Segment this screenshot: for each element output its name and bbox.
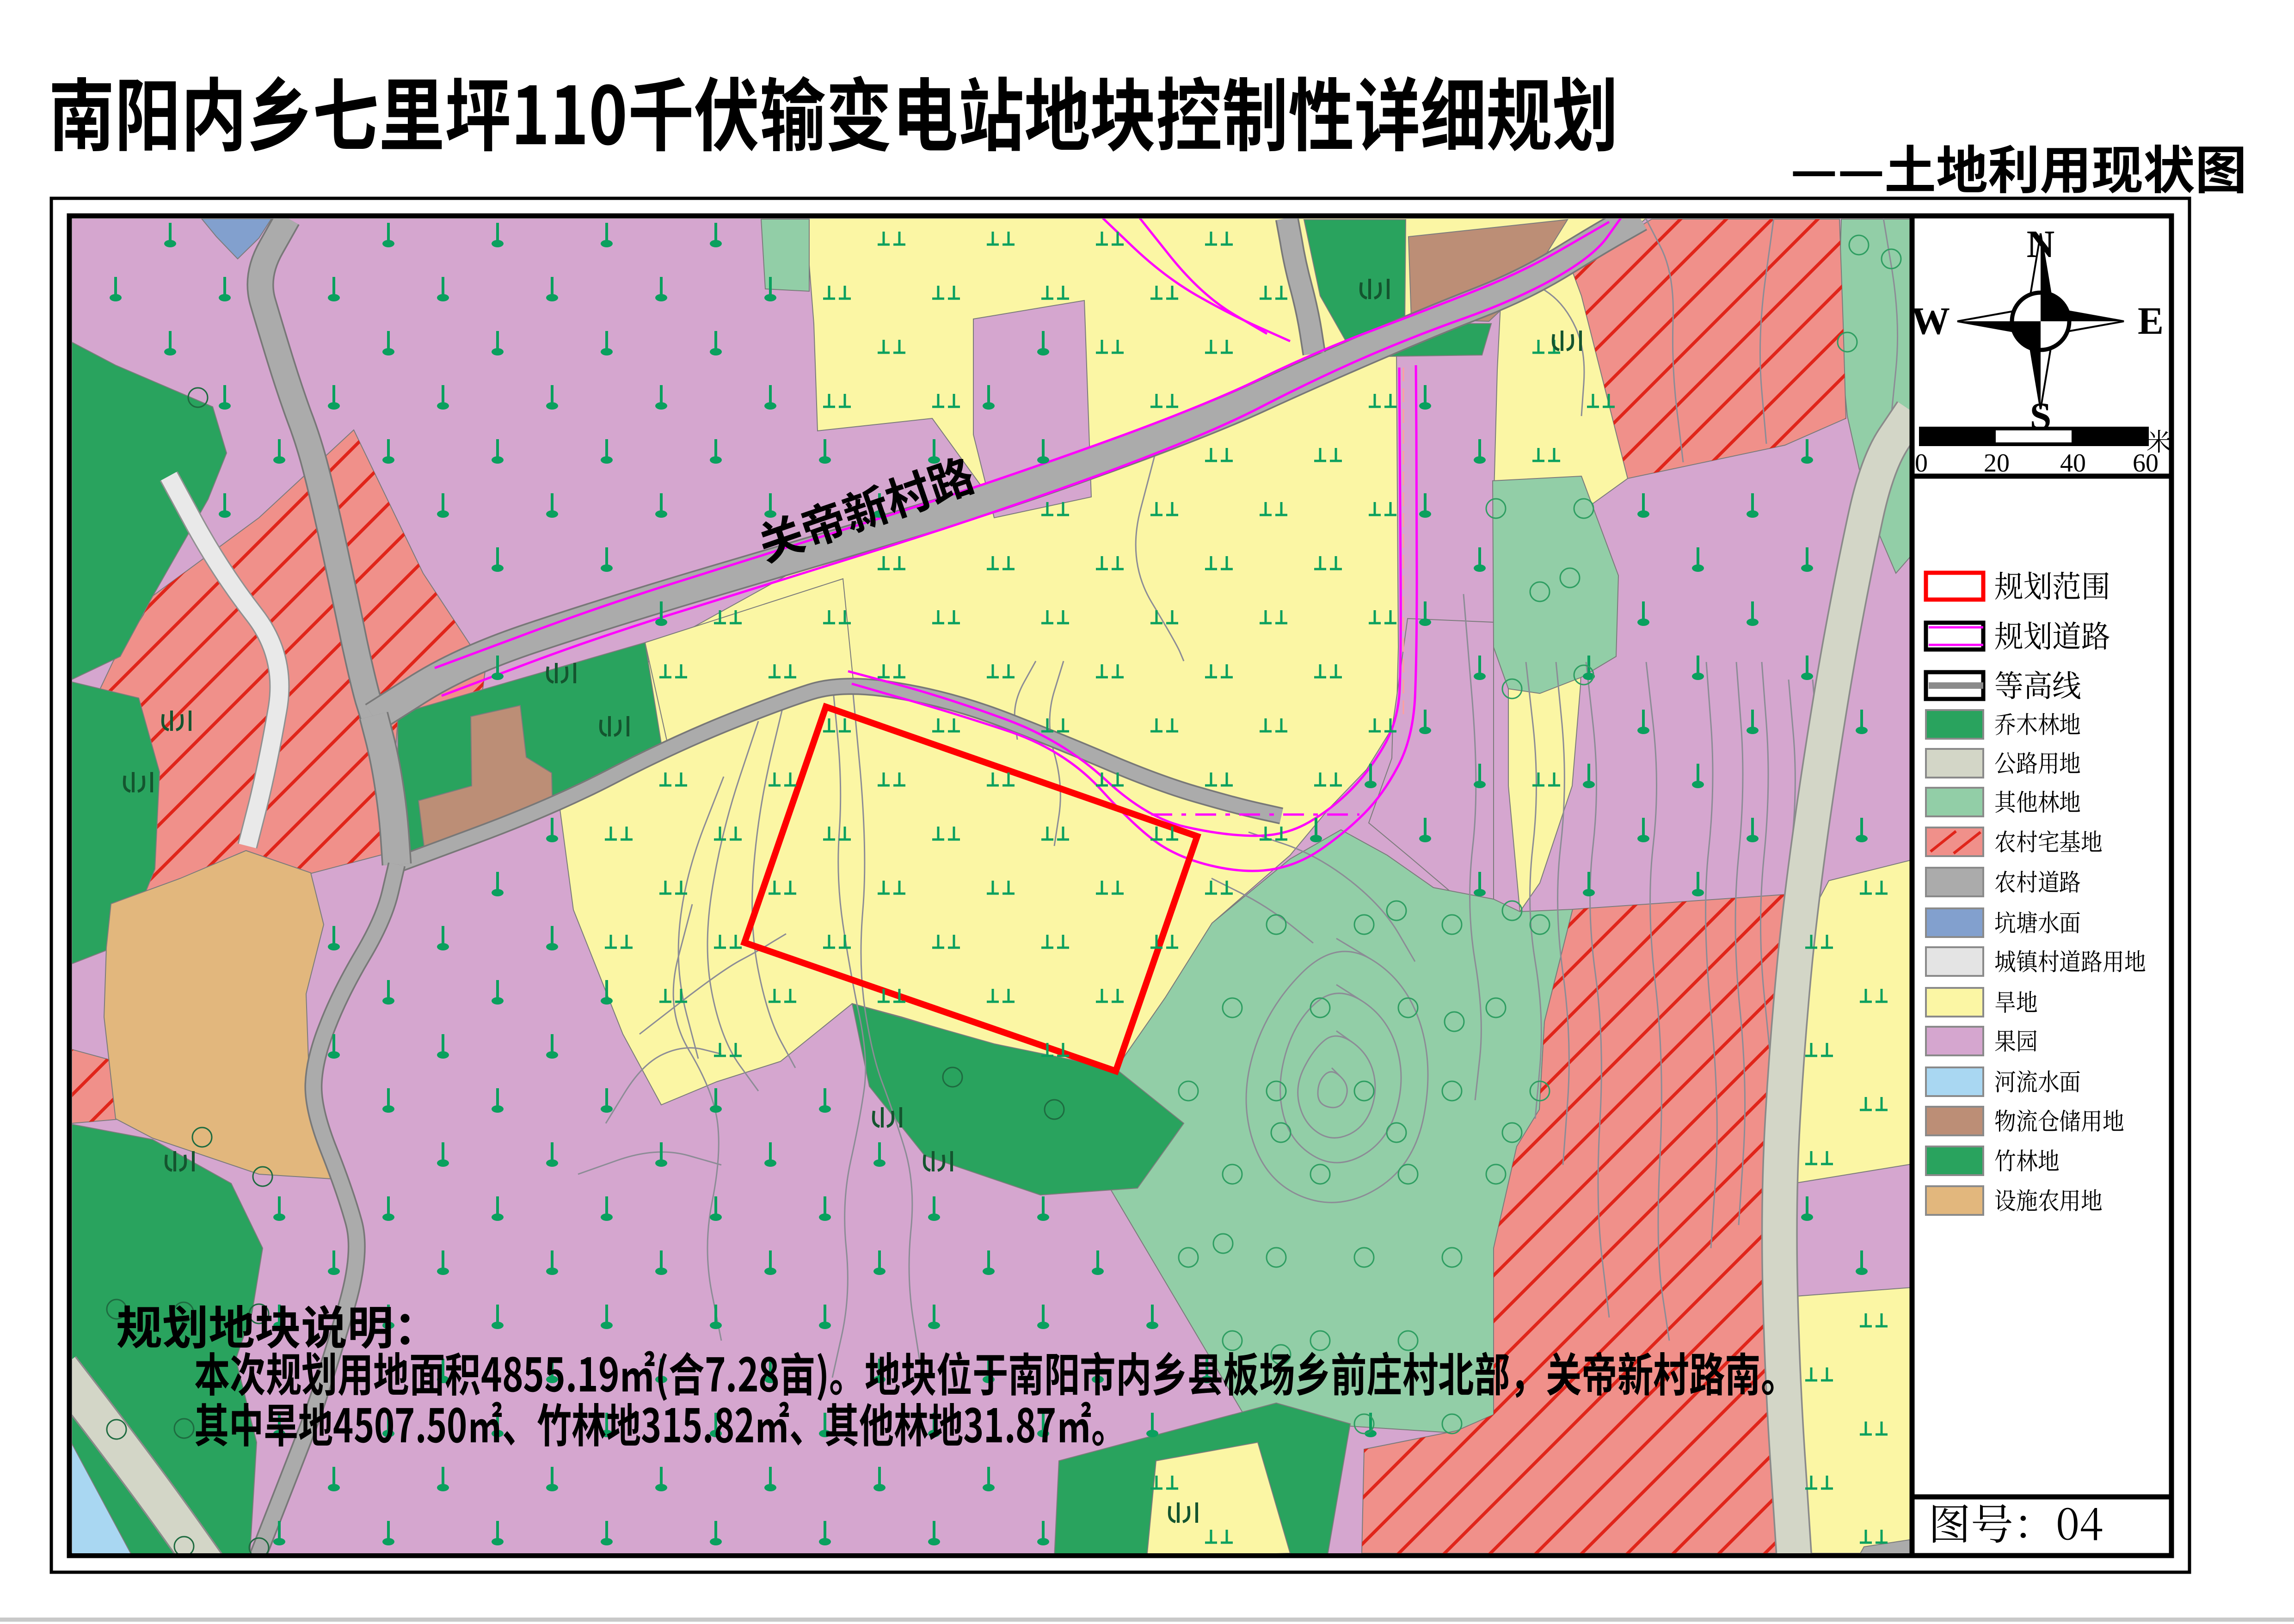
svg-text:W: W <box>1911 300 1950 343</box>
svg-text:0: 0 <box>1915 449 1928 478</box>
svg-text:N: N <box>2027 223 2055 266</box>
svg-text:60: 60 <box>2133 449 2159 478</box>
svg-text:20: 20 <box>1984 449 2010 478</box>
svg-text:E: E <box>2138 300 2164 343</box>
svg-text:40: 40 <box>2060 449 2086 478</box>
